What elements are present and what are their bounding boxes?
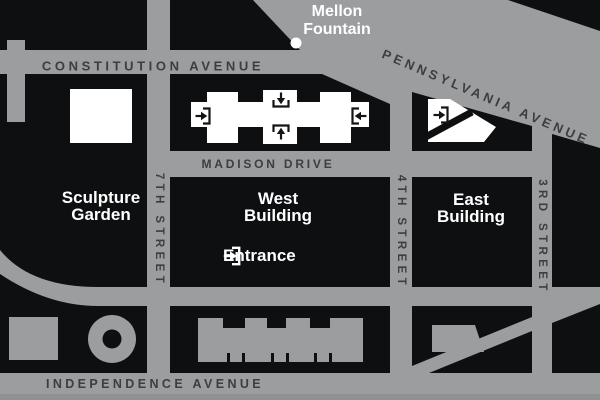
trapezoid-building bbox=[432, 325, 484, 352]
mellon-fountain-line1: Mellon bbox=[303, 3, 371, 21]
crenel-tick bbox=[314, 353, 317, 362]
crenel-tick bbox=[227, 353, 230, 362]
crenel-notch bbox=[223, 318, 245, 328]
main-entrance-marker: Entrance bbox=[223, 246, 296, 266]
seventh-street-label: 7TH STREET bbox=[153, 173, 165, 287]
white-square-building bbox=[70, 89, 132, 143]
constitution-avenue-label: CONSTITUTION AVENUE bbox=[42, 59, 264, 74]
west-building-line1: West bbox=[244, 190, 312, 207]
third-street-label: 3RD STREET bbox=[536, 179, 548, 295]
sculpture-garden-label: Sculpture Garden bbox=[62, 189, 140, 223]
fourth-street-label: 4TH STREET bbox=[395, 175, 407, 289]
madison-drive-label: MADISON DRIVE bbox=[201, 157, 334, 171]
east-building-line1: East bbox=[437, 191, 505, 208]
mellon-fountain-line2: Fountain bbox=[303, 21, 371, 39]
bottom-street-stripe bbox=[0, 394, 600, 400]
block-northeast-triangle bbox=[508, 0, 600, 31]
west-building-line2: Building bbox=[244, 207, 312, 224]
crenel-notch bbox=[310, 318, 330, 328]
independence-avenue-label: INDEPENDENCE AVENUE bbox=[46, 377, 264, 391]
ninth-street-stub bbox=[7, 40, 25, 122]
block-east-of-3rd bbox=[552, 134, 600, 287]
crenel-tick bbox=[286, 353, 289, 362]
mellon-fountain-dot bbox=[291, 38, 302, 49]
entrance-arrow-icon bbox=[223, 246, 243, 266]
crenel-tick bbox=[242, 353, 245, 362]
west-building-label: West Building bbox=[244, 190, 312, 224]
national-gallery-area-map: CONSTITUTION AVENUE PENNSYLVANIA AVENUE … bbox=[0, 0, 600, 400]
sculpture-garden-line2: Garden bbox=[62, 206, 140, 223]
donut-building-hole bbox=[103, 330, 122, 349]
sculpture-garden-line1: Sculpture bbox=[62, 189, 140, 206]
block-ftc-triangle bbox=[170, 0, 300, 50]
square-building bbox=[9, 317, 58, 360]
mellon-fountain-label: Mellon Fountain bbox=[303, 3, 371, 39]
block-southeast-corner bbox=[552, 304, 600, 373]
crenel-tick bbox=[271, 353, 274, 362]
crenel-notch bbox=[267, 318, 286, 328]
east-building-label: East Building bbox=[437, 191, 505, 225]
east-building-line2: Building bbox=[437, 208, 505, 225]
crenel-tick bbox=[329, 353, 332, 362]
